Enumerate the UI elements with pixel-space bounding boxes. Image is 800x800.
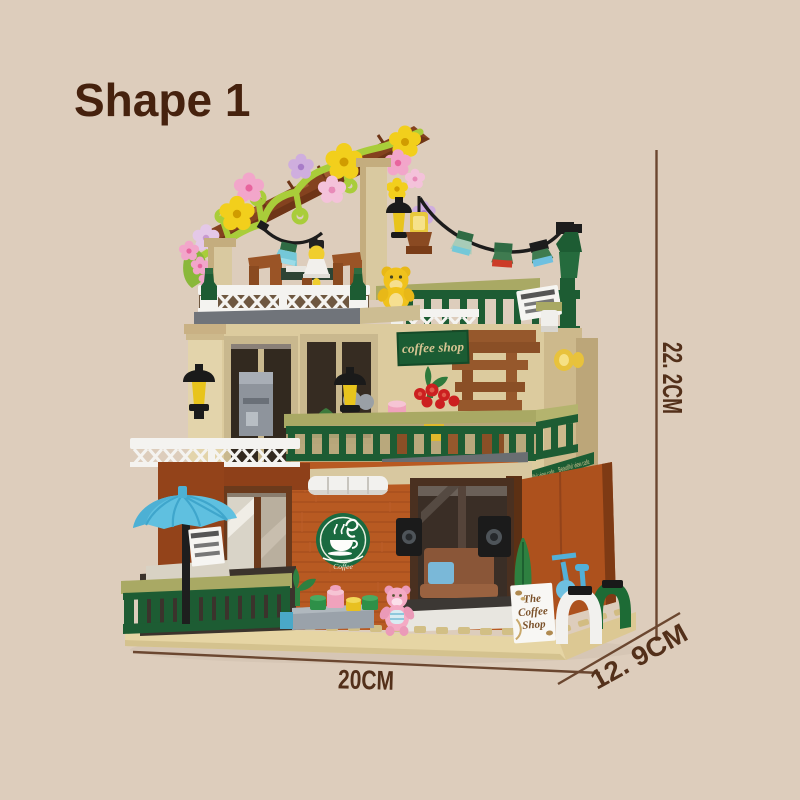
svg-text:coffee shop: coffee shop <box>402 339 465 356</box>
svg-text:Coffee: Coffee <box>333 562 353 571</box>
svg-text:Coffee: Coffee <box>518 605 549 619</box>
svg-text:22. 2CM: 22. 2CM <box>657 342 688 414</box>
svg-text:20CM: 20CM <box>338 664 395 695</box>
svg-text:Shop: Shop <box>522 618 547 632</box>
svg-text:Shape 1: Shape 1 <box>74 74 250 126</box>
svg-text:The: The <box>523 592 542 605</box>
